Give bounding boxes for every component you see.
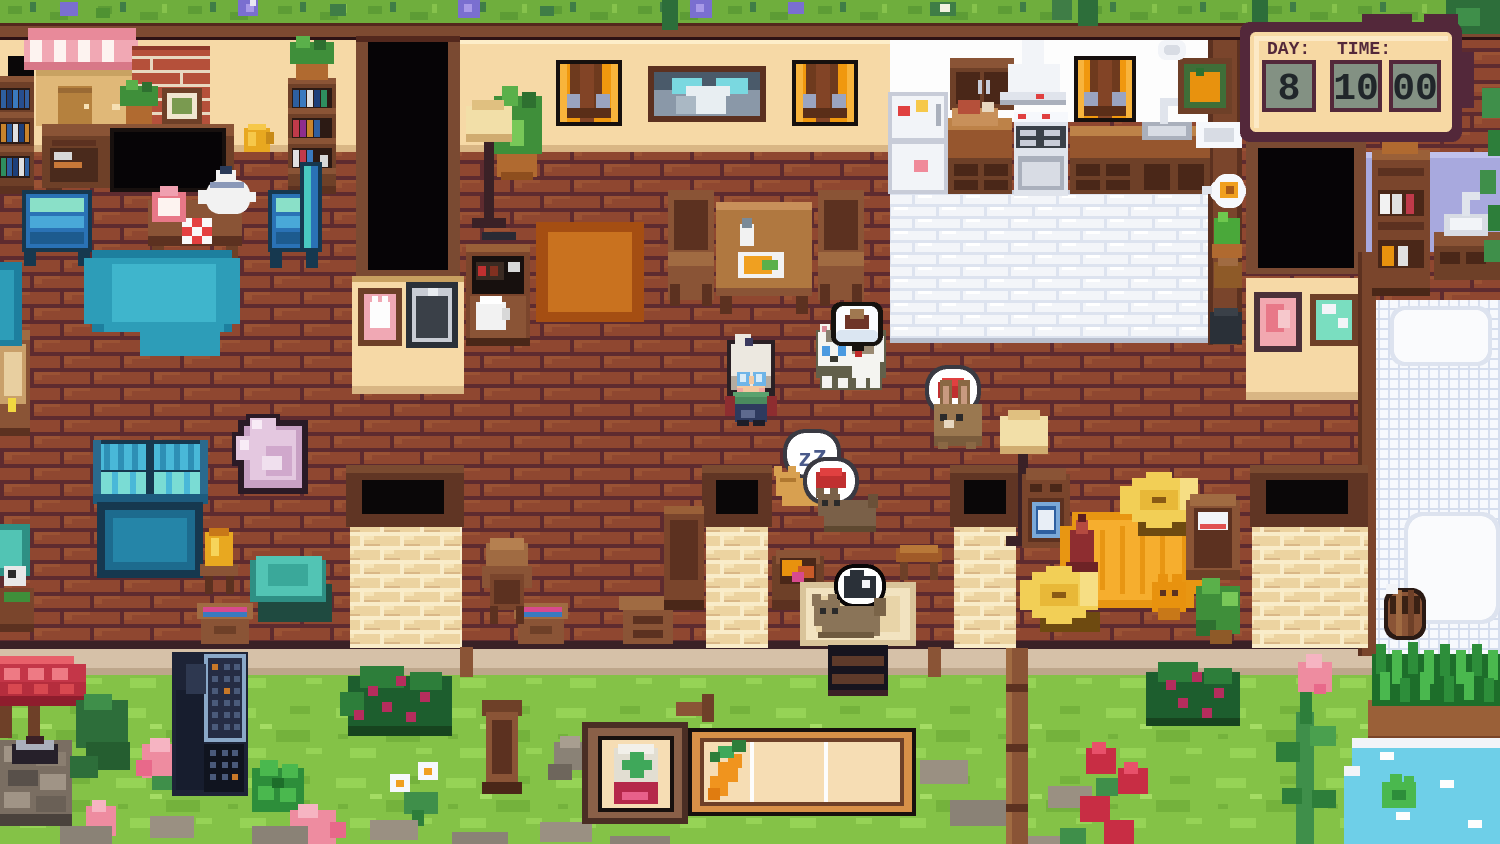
svg-text:DAY:: DAY: xyxy=(1267,40,1310,60)
svg-text:00: 00 xyxy=(1392,68,1438,111)
svg-text:8: 8 xyxy=(1278,68,1301,111)
svg-text:10: 10 xyxy=(1333,68,1379,111)
svg-text:TIME:: TIME: xyxy=(1337,40,1391,60)
